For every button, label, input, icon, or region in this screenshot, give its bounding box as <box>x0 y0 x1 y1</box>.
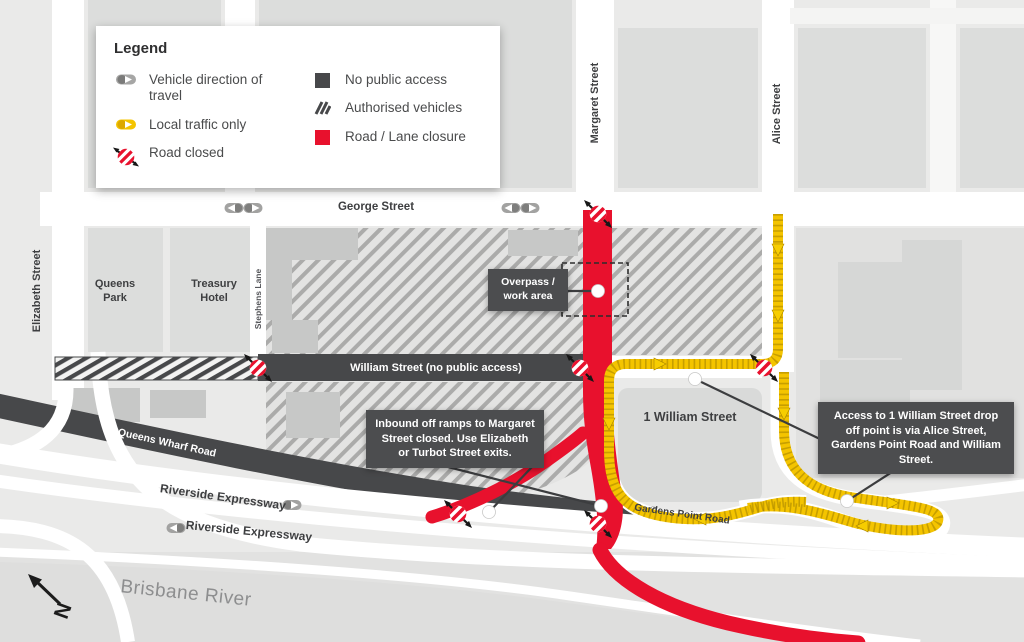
legend-item-authorised-vehicles: Authorised vehicles <box>308 100 484 116</box>
william-street-label: William Street (no public access) <box>262 356 610 380</box>
legend-title: Legend <box>114 40 484 57</box>
legend-item-road-closed: Road closed <box>112 145 290 168</box>
vehicle-direction-icon <box>244 203 263 213</box>
vehicle-direction-icon <box>225 203 244 213</box>
legend-item-label: Local traffic only <box>149 117 246 133</box>
margaret-street-label: Margaret Street <box>589 53 601 153</box>
inbound-ramps-callout: Inbound off ramps to Margaret Street clo… <box>366 410 544 468</box>
william-street-authorised-strip <box>55 357 258 380</box>
vehicle-direction-icon <box>521 203 540 213</box>
legend-item-no-public-access: No public access <box>308 72 484 88</box>
one-william-street-block <box>618 388 762 502</box>
local-traffic-icon <box>112 117 140 131</box>
alice-street-label: Alice Street <box>771 64 783 164</box>
legend-item-label: Authorised vehicles <box>345 100 462 116</box>
legend-item-label: Vehicle direction of travel <box>149 72 290 105</box>
one-william-street-label: 1 William Street <box>618 410 762 424</box>
authorised-vehicles-icon <box>308 100 336 115</box>
george-street-label: George Street <box>296 201 456 213</box>
legend-item-label: Road closed <box>149 145 224 161</box>
legend-item-label: No public access <box>345 72 447 88</box>
overpass-callout: Overpass / work area <box>488 269 568 311</box>
legend-item-label: Road / Lane closure <box>345 129 466 145</box>
one-william-access-callout: Access to 1 William Street drop off poin… <box>818 402 1014 474</box>
stephens-lane-label: Stephens Lane <box>253 251 263 347</box>
queens-park-label: Queens Park <box>84 277 146 306</box>
vehicle-direction-icon <box>112 72 140 86</box>
treasury-hotel-label: Treasury Hotel <box>179 277 249 306</box>
legend-panel: Legend Vehicle direction of travel <box>96 26 500 188</box>
road-lane-closure-icon <box>308 129 336 145</box>
vehicle-direction-icon <box>502 203 521 213</box>
legend-item-road-lane-closure: Road / Lane closure <box>308 129 484 145</box>
road-closed-icon <box>112 145 140 168</box>
no-public-access-icon <box>308 72 336 88</box>
road-closure-map: N George Street Elizabeth Street Margare… <box>0 0 1024 642</box>
legend-item-local-traffic: Local traffic only <box>112 117 290 133</box>
elizabeth-street-label: Elizabeth Street <box>31 241 43 341</box>
legend-item-vehicle-direction: Vehicle direction of travel <box>112 72 290 105</box>
